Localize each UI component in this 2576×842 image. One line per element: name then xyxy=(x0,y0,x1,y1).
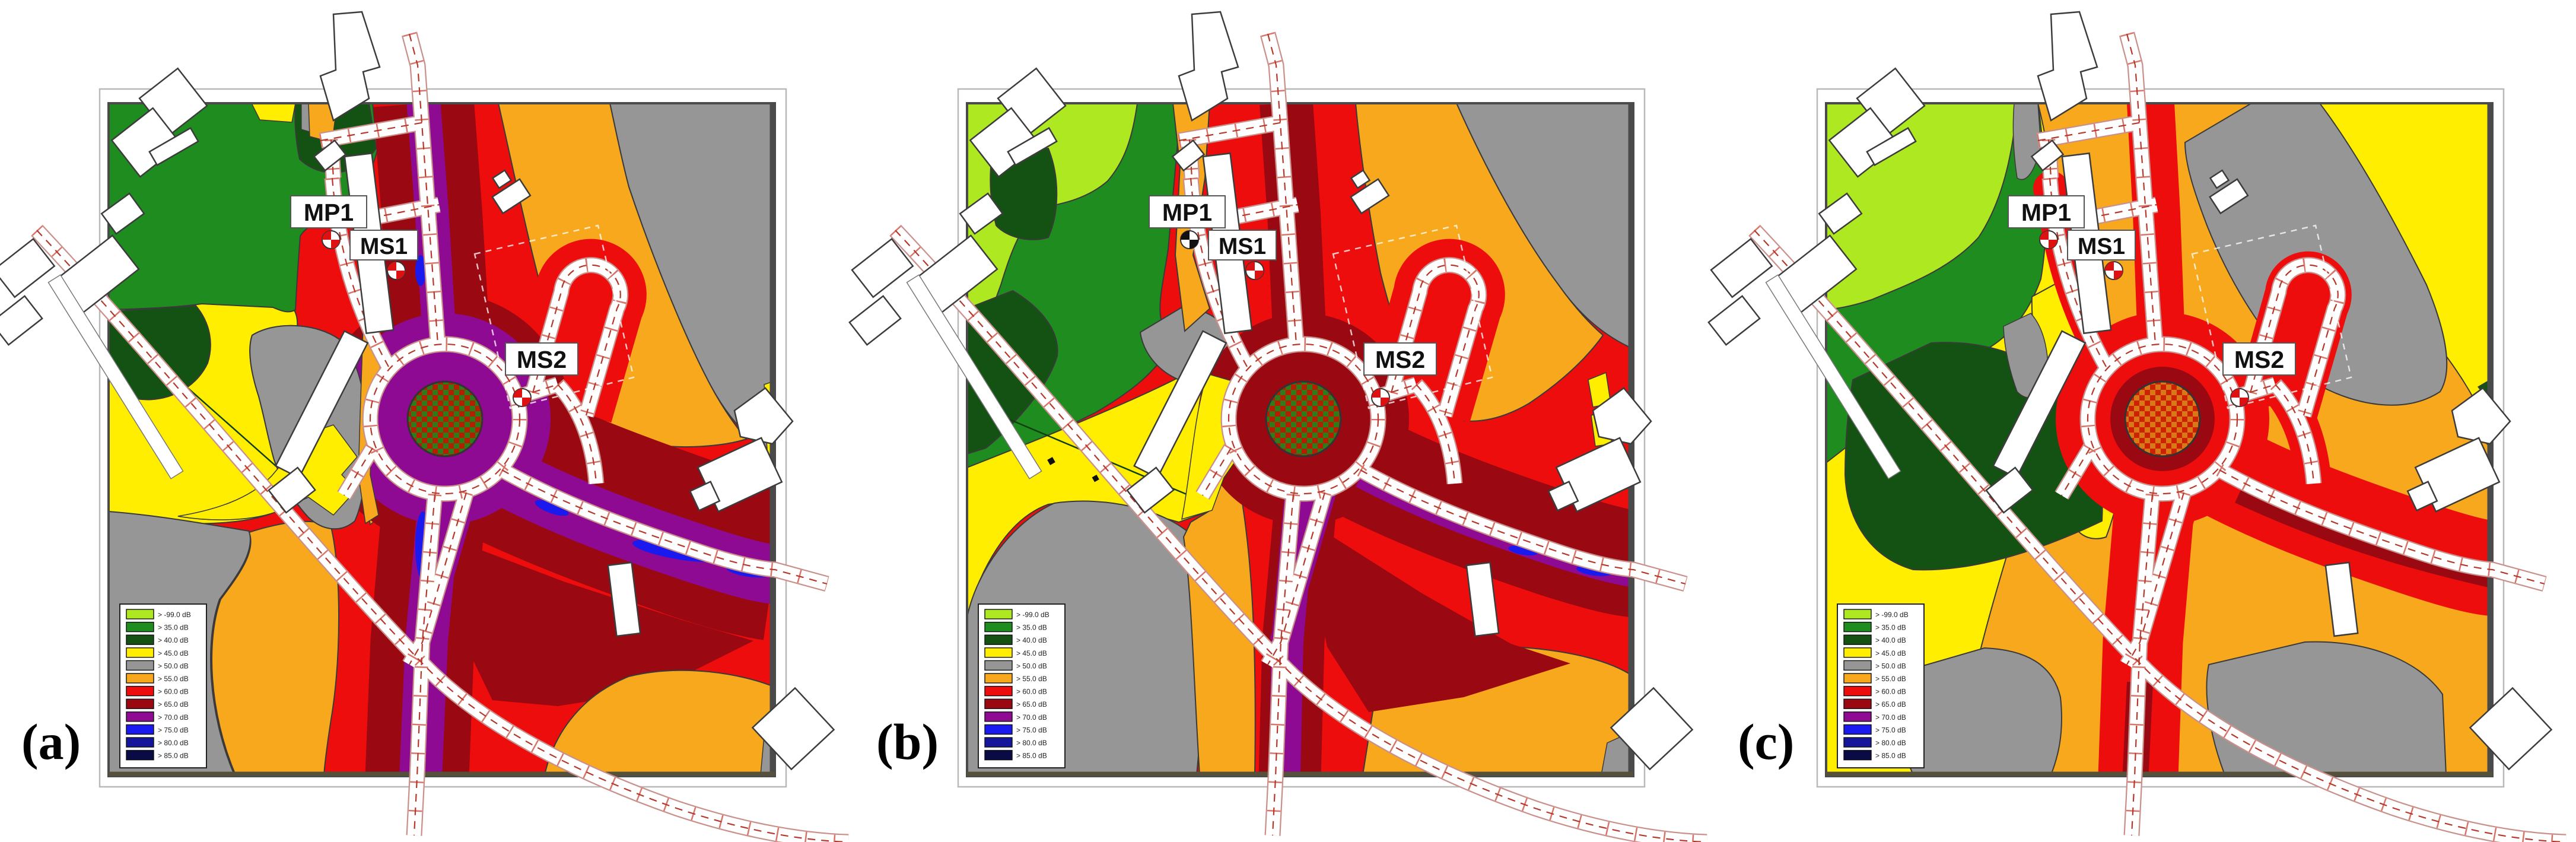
svg-text:> 40.0 dB: > 40.0 dB xyxy=(158,636,189,644)
svg-text:> 80.0 dB: > 80.0 dB xyxy=(1875,739,1906,747)
svg-text:MS1: MS1 xyxy=(360,234,408,259)
svg-text:> 65.0 dB: > 65.0 dB xyxy=(1016,700,1047,708)
svg-text:> 55.0 dB: > 55.0 dB xyxy=(158,675,189,683)
svg-text:> 50.0 dB: > 50.0 dB xyxy=(1875,662,1906,670)
svg-text:> 65.0 dB: > 65.0 dB xyxy=(158,700,189,708)
svg-text:(b): (b) xyxy=(876,713,939,770)
svg-text:> 60.0 dB: > 60.0 dB xyxy=(1016,688,1047,696)
svg-text:> 45.0 dB: > 45.0 dB xyxy=(1016,649,1047,657)
svg-text:> 50.0 dB: > 50.0 dB xyxy=(1016,662,1047,670)
svg-text:MS2: MS2 xyxy=(1375,346,1425,373)
svg-text:(a): (a) xyxy=(21,713,81,770)
svg-text:> 60.0 dB: > 60.0 dB xyxy=(158,688,189,696)
svg-text:> -99.0 dB: > -99.0 dB xyxy=(1875,611,1909,619)
svg-text:> 85.0 dB: > 85.0 dB xyxy=(1875,752,1906,760)
svg-text:> 80.0 dB: > 80.0 dB xyxy=(1016,739,1047,747)
svg-text:> 75.0 dB: > 75.0 dB xyxy=(1016,726,1047,734)
svg-text:> 70.0 dB: > 70.0 dB xyxy=(1016,713,1047,722)
svg-text:MS1: MS1 xyxy=(2078,234,2125,259)
svg-text:MS2: MS2 xyxy=(517,346,567,373)
svg-text:> 55.0 dB: > 55.0 dB xyxy=(1875,675,1906,683)
svg-text:> 45.0 dB: > 45.0 dB xyxy=(1875,649,1906,657)
svg-text:> 85.0 dB: > 85.0 dB xyxy=(1016,752,1047,760)
svg-text:MP1: MP1 xyxy=(2021,199,2071,226)
svg-text:> 65.0 dB: > 65.0 dB xyxy=(1875,700,1906,708)
svg-text:> 40.0 dB: > 40.0 dB xyxy=(1016,636,1047,644)
svg-text:MP1: MP1 xyxy=(1162,199,1212,226)
svg-text:(c): (c) xyxy=(1738,713,1794,770)
svg-text:> 85.0 dB: > 85.0 dB xyxy=(158,752,189,760)
svg-text:> 70.0 dB: > 70.0 dB xyxy=(1875,713,1906,722)
svg-text:> -99.0 dB: > -99.0 dB xyxy=(1016,611,1050,619)
svg-text:> 75.0 dB: > 75.0 dB xyxy=(1875,726,1906,734)
svg-text:> -99.0 dB: > -99.0 dB xyxy=(158,611,191,619)
svg-text:> 40.0 dB: > 40.0 dB xyxy=(1875,636,1906,644)
svg-text:> 60.0 dB: > 60.0 dB xyxy=(1875,688,1906,696)
svg-text:> 55.0 dB: > 55.0 dB xyxy=(1016,675,1047,683)
svg-text:> 70.0 dB: > 70.0 dB xyxy=(158,713,189,722)
svg-text:> 50.0 dB: > 50.0 dB xyxy=(158,662,189,670)
svg-text:> 45.0 dB: > 45.0 dB xyxy=(158,649,189,657)
svg-text:> 35.0 dB: > 35.0 dB xyxy=(1016,624,1047,632)
svg-text:> 35.0 dB: > 35.0 dB xyxy=(1875,624,1906,632)
svg-text:MS1: MS1 xyxy=(1219,234,1266,259)
svg-text:> 80.0 dB: > 80.0 dB xyxy=(158,739,189,747)
svg-text:MP1: MP1 xyxy=(304,199,354,226)
svg-text:> 75.0 dB: > 75.0 dB xyxy=(158,726,189,734)
svg-text:MS2: MS2 xyxy=(2234,346,2284,373)
svg-text:> 35.0 dB: > 35.0 dB xyxy=(158,624,189,632)
